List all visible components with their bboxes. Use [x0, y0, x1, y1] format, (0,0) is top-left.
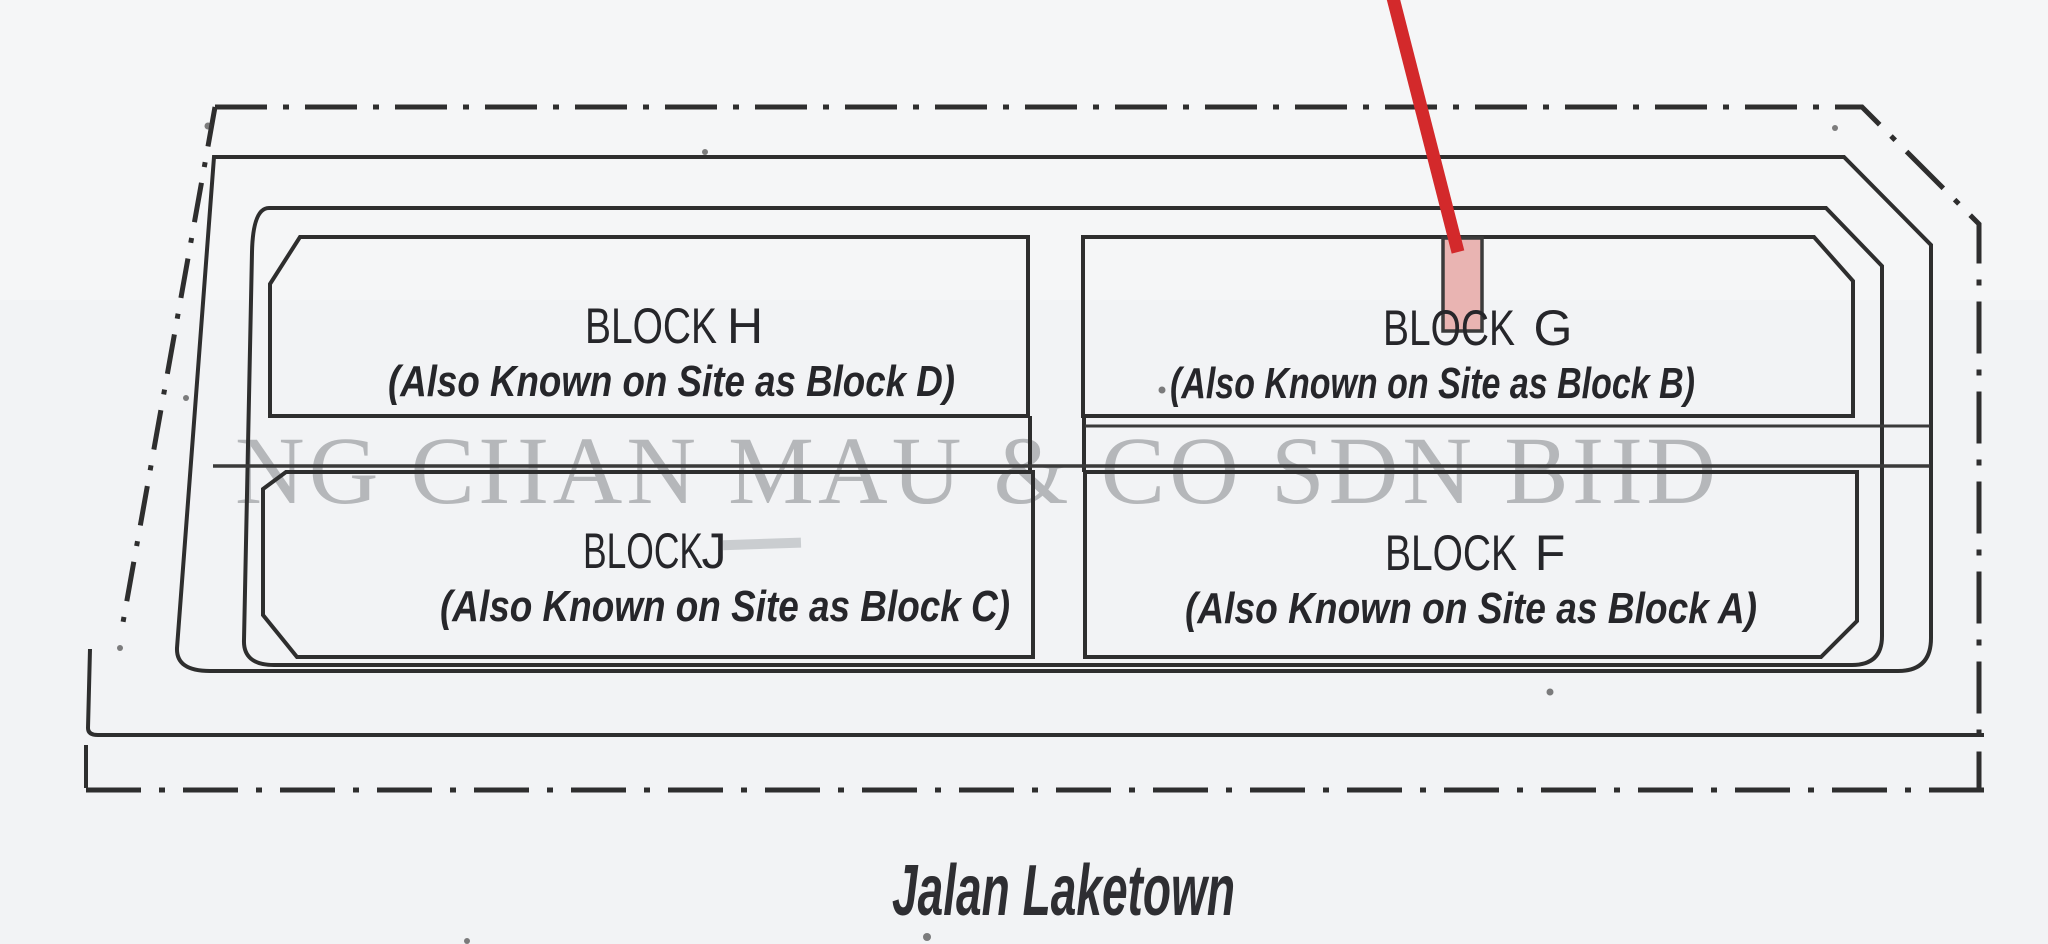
block-g-title-letter: G	[1534, 300, 1573, 356]
block-g-alias: (Also Known on Site as Block B)	[1170, 359, 1695, 408]
scan-speck	[117, 645, 123, 651]
scan-speck	[702, 149, 708, 155]
road-name-label: Jalan Laketown	[892, 851, 1235, 931]
block-j-title-letter: J	[702, 523, 727, 579]
block-f-title-word: BLOCK	[1385, 525, 1517, 581]
scan-speck	[1547, 689, 1554, 696]
site-plan: NG CHAN MAU & CO SDN BHD BLOCK H (Also K…	[0, 0, 2048, 944]
scan-speck	[183, 395, 189, 401]
scan-light-band	[0, 0, 2048, 300]
block-j-title-word: BLOCK	[583, 523, 703, 579]
block-h-alias: (Also Known on Site as Block D)	[388, 357, 955, 406]
scan-speck	[1159, 387, 1166, 394]
block-j-alias: (Also Known on Site as Block C)	[440, 582, 1010, 631]
block-h-title-word: BLOCK	[585, 298, 717, 354]
scan-speck	[205, 123, 212, 130]
block-f-alias: (Also Known on Site as Block A)	[1185, 584, 1757, 633]
block-g-title-word: BLOCK	[1383, 300, 1515, 356]
scan-speck	[1832, 125, 1838, 131]
block-h-title-letter: H	[727, 298, 763, 354]
scan-speck	[923, 933, 931, 941]
scan-speck	[464, 938, 470, 944]
block-f-title-letter: F	[1535, 525, 1566, 581]
